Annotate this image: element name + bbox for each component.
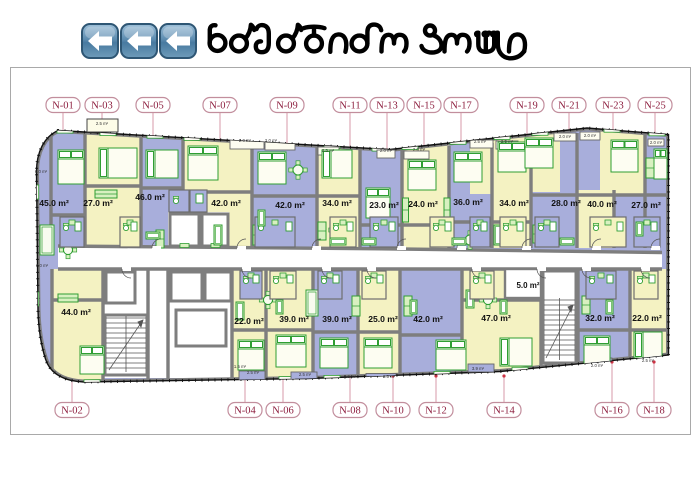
svg-text:2.5 m²: 2.5 m² (383, 374, 396, 379)
svg-text:N-19: N-19 (516, 101, 538, 112)
svg-text:2.5 m²: 2.5 m² (247, 370, 260, 375)
svg-text:28.0 m²: 28.0 m² (551, 198, 581, 208)
svg-text:22.0 m²: 22.0 m² (632, 313, 662, 323)
svg-text:2.0 m²: 2.0 m² (650, 140, 663, 145)
svg-text:7.0 m²: 7.0 m² (36, 263, 49, 268)
svg-text:42.0 m²: 42.0 m² (413, 314, 443, 324)
svg-text:N-06: N-06 (272, 406, 294, 417)
svg-text:N-25: N-25 (644, 101, 666, 112)
svg-text:2.5 m²: 2.5 m² (501, 139, 514, 144)
svg-text:2.0 m²: 2.0 m² (413, 147, 426, 152)
svg-text:45.0 m²: 45.0 m² (39, 198, 69, 208)
svg-text:N-08: N-08 (339, 406, 361, 417)
svg-text:5.0 m²: 5.0 m² (516, 281, 539, 290)
svg-text:N-02: N-02 (61, 406, 83, 417)
svg-text:6.0 m²: 6.0 m² (35, 169, 48, 174)
svg-text:N-03: N-03 (91, 101, 113, 112)
svg-text:N-12: N-12 (425, 406, 447, 417)
svg-text:2.0 m²: 2.0 m² (344, 374, 357, 379)
svg-text:44.0 m²: 44.0 m² (61, 307, 91, 317)
svg-text:34.0 m²: 34.0 m² (322, 198, 352, 208)
svg-text:2.5 m²: 2.5 m² (299, 372, 312, 377)
svg-text:42.0 m²: 42.0 m² (275, 200, 305, 210)
svg-text:27.0 m²: 27.0 m² (83, 198, 113, 208)
svg-text:39.0 m²: 39.0 m² (279, 314, 309, 324)
svg-text:36.0 m²: 36.0 m² (453, 197, 483, 207)
svg-text:N-11: N-11 (339, 101, 360, 112)
svg-text:N-04: N-04 (234, 406, 256, 417)
svg-text:3.9 m²: 3.9 m² (472, 366, 485, 371)
svg-text:N-13: N-13 (376, 101, 398, 112)
svg-text:2.5 m²: 2.5 m² (474, 139, 487, 144)
svg-text:22.0 m²: 22.0 m² (234, 316, 264, 326)
svg-text:2.0 m²: 2.0 m² (584, 133, 597, 138)
svg-text:N-01: N-01 (52, 101, 74, 112)
svg-text:2.0 m²: 2.0 m² (239, 138, 252, 143)
svg-text:N-21: N-21 (558, 101, 580, 112)
svg-text:N-18: N-18 (643, 406, 665, 417)
svg-text:23.0 m²: 23.0 m² (369, 200, 399, 210)
svg-text:27.0 m²: 27.0 m² (631, 200, 661, 210)
svg-text:N-09: N-09 (276, 101, 298, 112)
svg-text:39.0 m²: 39.0 m² (322, 314, 352, 324)
svg-text:N-07: N-07 (209, 101, 231, 112)
svg-text:N-17: N-17 (450, 101, 472, 112)
svg-text:N-15: N-15 (413, 101, 435, 112)
svg-text:2.5 m²: 2.5 m² (322, 148, 335, 153)
svg-text:2.0 m²: 2.0 m² (559, 134, 572, 139)
svg-text:1.5 m²: 1.5 m² (234, 364, 247, 369)
svg-text:46.0 m²: 46.0 m² (135, 192, 165, 202)
svg-text:N-05: N-05 (142, 101, 164, 112)
svg-text:34.0 m²: 34.0 m² (499, 198, 529, 208)
svg-text:2.5 m²: 2.5 m² (642, 358, 655, 363)
svg-text:2.0 m²: 2.0 m² (591, 363, 604, 368)
svg-text:2.0 m²: 2.0 m² (265, 138, 278, 143)
svg-text:47.0 m²: 47.0 m² (481, 313, 511, 323)
svg-text:N-16: N-16 (601, 406, 623, 417)
svg-text:42.0 m²: 42.0 m² (211, 198, 241, 208)
svg-text:N-14: N-14 (493, 406, 515, 417)
svg-text:N-10: N-10 (382, 406, 404, 417)
svg-text:25.0 m²: 25.0 m² (368, 314, 398, 324)
svg-text:N-23: N-23 (602, 101, 624, 112)
svg-text:24.0 m²: 24.0 m² (408, 199, 438, 209)
svg-text:32.0 m²: 32.0 m² (585, 313, 615, 323)
svg-text:2.5 m²: 2.5 m² (96, 121, 109, 126)
svg-text:40.0 m²: 40.0 m² (587, 199, 617, 209)
svg-text:2.0 m²: 2.0 m² (380, 148, 393, 153)
